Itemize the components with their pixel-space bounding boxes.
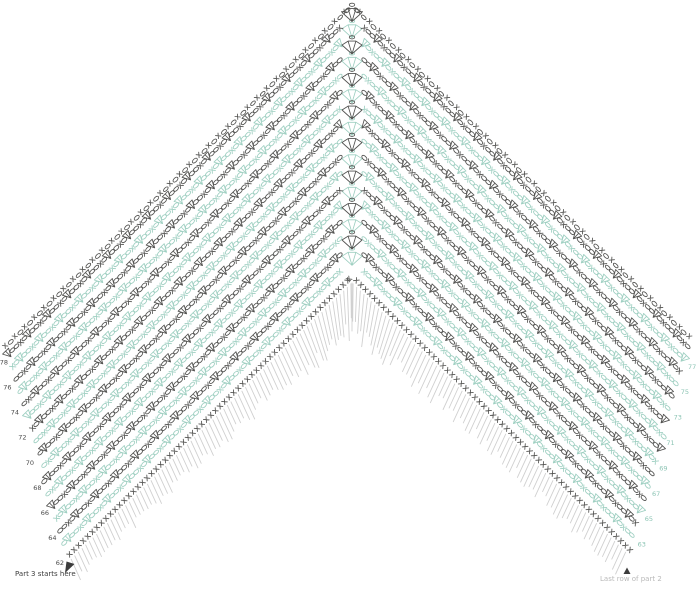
row-number-75: 75 (681, 388, 689, 396)
row-number-77: 77 (688, 363, 696, 371)
crochet-chart-page: 6263646566676869707172737475767778 Part … (0, 0, 700, 591)
row-number-70: 70 (26, 459, 34, 467)
row-number-65: 65 (645, 515, 653, 523)
last-row-part2-label: Last row of part 2 (600, 575, 662, 583)
row-number-66: 66 (41, 509, 49, 517)
last-row-marker-arrow-icon (624, 568, 631, 575)
row-number-74: 74 (11, 409, 19, 417)
row-number-73: 73 (674, 414, 682, 422)
part3-start-label: Part 3 starts here (15, 570, 76, 578)
row-number-76: 76 (3, 383, 11, 391)
row-number-78: 78 (0, 358, 8, 366)
row-number-71: 71 (666, 439, 674, 447)
row-number-63: 63 (638, 541, 646, 549)
row-number-69: 69 (659, 464, 667, 472)
dark-row-stitches (2, 3, 692, 557)
crochet-chevron-chart: 6263646566676869707172737475767778 (0, 0, 700, 591)
row-number-67: 67 (652, 490, 660, 498)
row-number-62: 62 (56, 559, 64, 567)
row-number-72: 72 (18, 434, 26, 442)
row-number-64: 64 (48, 534, 56, 542)
row-number-68: 68 (33, 484, 41, 492)
